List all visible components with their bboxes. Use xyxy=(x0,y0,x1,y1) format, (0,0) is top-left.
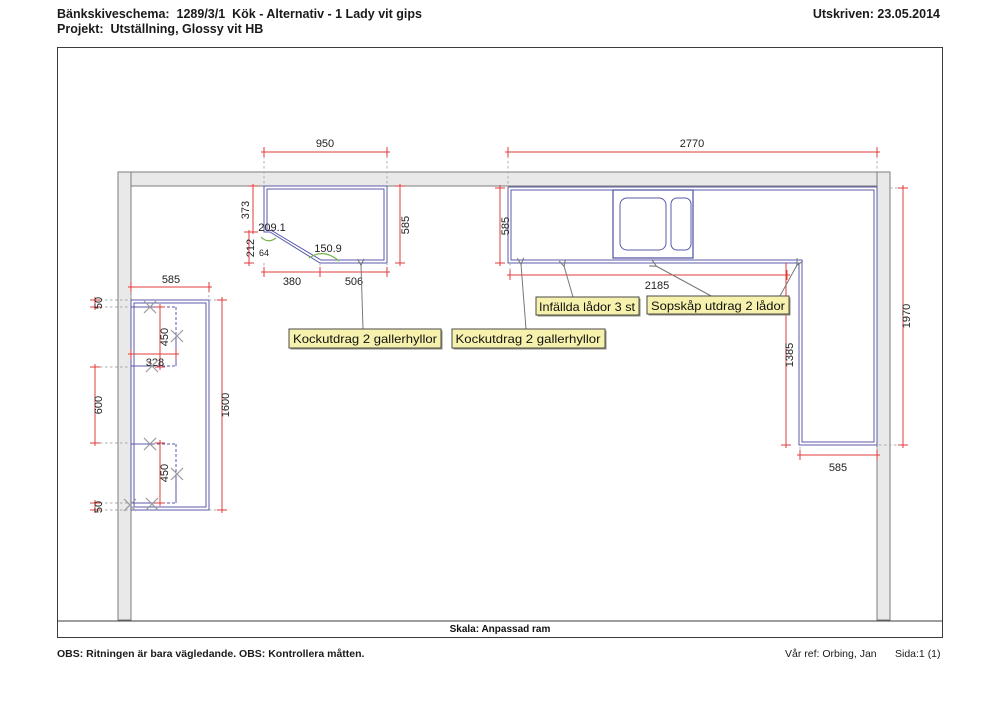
dim-380: 380 xyxy=(261,267,323,288)
dim-50-bottom: 50 xyxy=(90,500,105,513)
svg-text:450: 450 xyxy=(159,464,171,482)
wall-top xyxy=(118,172,890,186)
dim-2770: 2770 xyxy=(505,138,880,157)
dim-2185: 2185 xyxy=(507,270,790,292)
svg-text:506: 506 xyxy=(345,276,363,288)
svg-text:950: 950 xyxy=(316,138,334,150)
dim-1600: 1600 xyxy=(217,297,232,513)
svg-text:2185: 2185 xyxy=(645,280,669,292)
svg-text:212: 212 xyxy=(245,239,257,257)
svg-text:450: 450 xyxy=(159,328,171,346)
footer-page: Sida:1 (1) xyxy=(895,648,941,660)
svg-text:64: 64 xyxy=(259,248,269,258)
dim-585-island: 585 xyxy=(128,274,212,292)
dim-1970: 1970 xyxy=(898,185,913,448)
svg-text:2770: 2770 xyxy=(680,138,704,150)
label-kockutdrag-1: Kockutdrag 2 gallerhyllor xyxy=(289,329,443,350)
dim-585-leg: 585 xyxy=(797,450,880,474)
dim-950: 950 xyxy=(261,138,390,157)
svg-text:1385: 1385 xyxy=(784,343,796,367)
dim-506: 506 xyxy=(320,267,390,288)
svg-text:50: 50 xyxy=(93,297,105,309)
svg-text:150.9: 150.9 xyxy=(314,243,342,255)
svg-text:585: 585 xyxy=(829,462,847,474)
footer-our-ref: Vår ref: Orbing, Jan xyxy=(785,648,877,660)
svg-text:Kockutdrag 2 gallerhyllor: Kockutdrag 2 gallerhyllor xyxy=(456,332,601,346)
footer-note: OBS: Ritningen är bara vägledande. OBS: … xyxy=(57,648,364,660)
dim-373: 373 xyxy=(240,184,258,234)
plan-drawing: 950 2770 373 212 64 585 380 xyxy=(0,0,1000,701)
svg-text:585: 585 xyxy=(162,274,180,286)
svg-text:50: 50 xyxy=(93,501,105,513)
wall-right xyxy=(877,172,890,620)
svg-text:Infällda lådor 3 st: Infällda lådor 3 st xyxy=(539,300,636,314)
svg-text:380: 380 xyxy=(283,276,301,288)
dim-600: 600 xyxy=(90,364,105,446)
label-infallda-lador: Infällda lådor 3 st xyxy=(536,297,641,317)
dim-585-left-piece: 585 xyxy=(395,184,412,266)
svg-text:209.1: 209.1 xyxy=(258,222,286,234)
dim-50-top: 50 xyxy=(90,297,105,310)
svg-text:1600: 1600 xyxy=(220,393,232,417)
drawing-page: Bänkskiveschema: 1289/3/1 Kök - Alternat… xyxy=(0,0,1000,701)
svg-text:373: 373 xyxy=(240,201,252,219)
svg-text:585: 585 xyxy=(500,217,512,235)
svg-text:Kockutdrag 2 gallerhyllor: Kockutdrag 2 gallerhyllor xyxy=(293,332,437,346)
dim-212: 212 xyxy=(244,230,257,266)
scale-text: Skala: Anpassad ram xyxy=(450,624,551,635)
svg-text:585: 585 xyxy=(400,216,412,234)
svg-text:600: 600 xyxy=(93,396,105,414)
svg-text:1970: 1970 xyxy=(901,304,913,328)
svg-text:Sopskåp utdrag 2 lådor: Sopskåp utdrag 2 lådor xyxy=(651,299,785,313)
dim-64: 64 xyxy=(259,248,269,258)
label-kockutdrag-2: Kockutdrag 2 gallerhyllor xyxy=(452,329,607,350)
label-sopskap: Sopskåp utdrag 2 lådor xyxy=(647,296,791,316)
wall-left xyxy=(118,172,131,620)
